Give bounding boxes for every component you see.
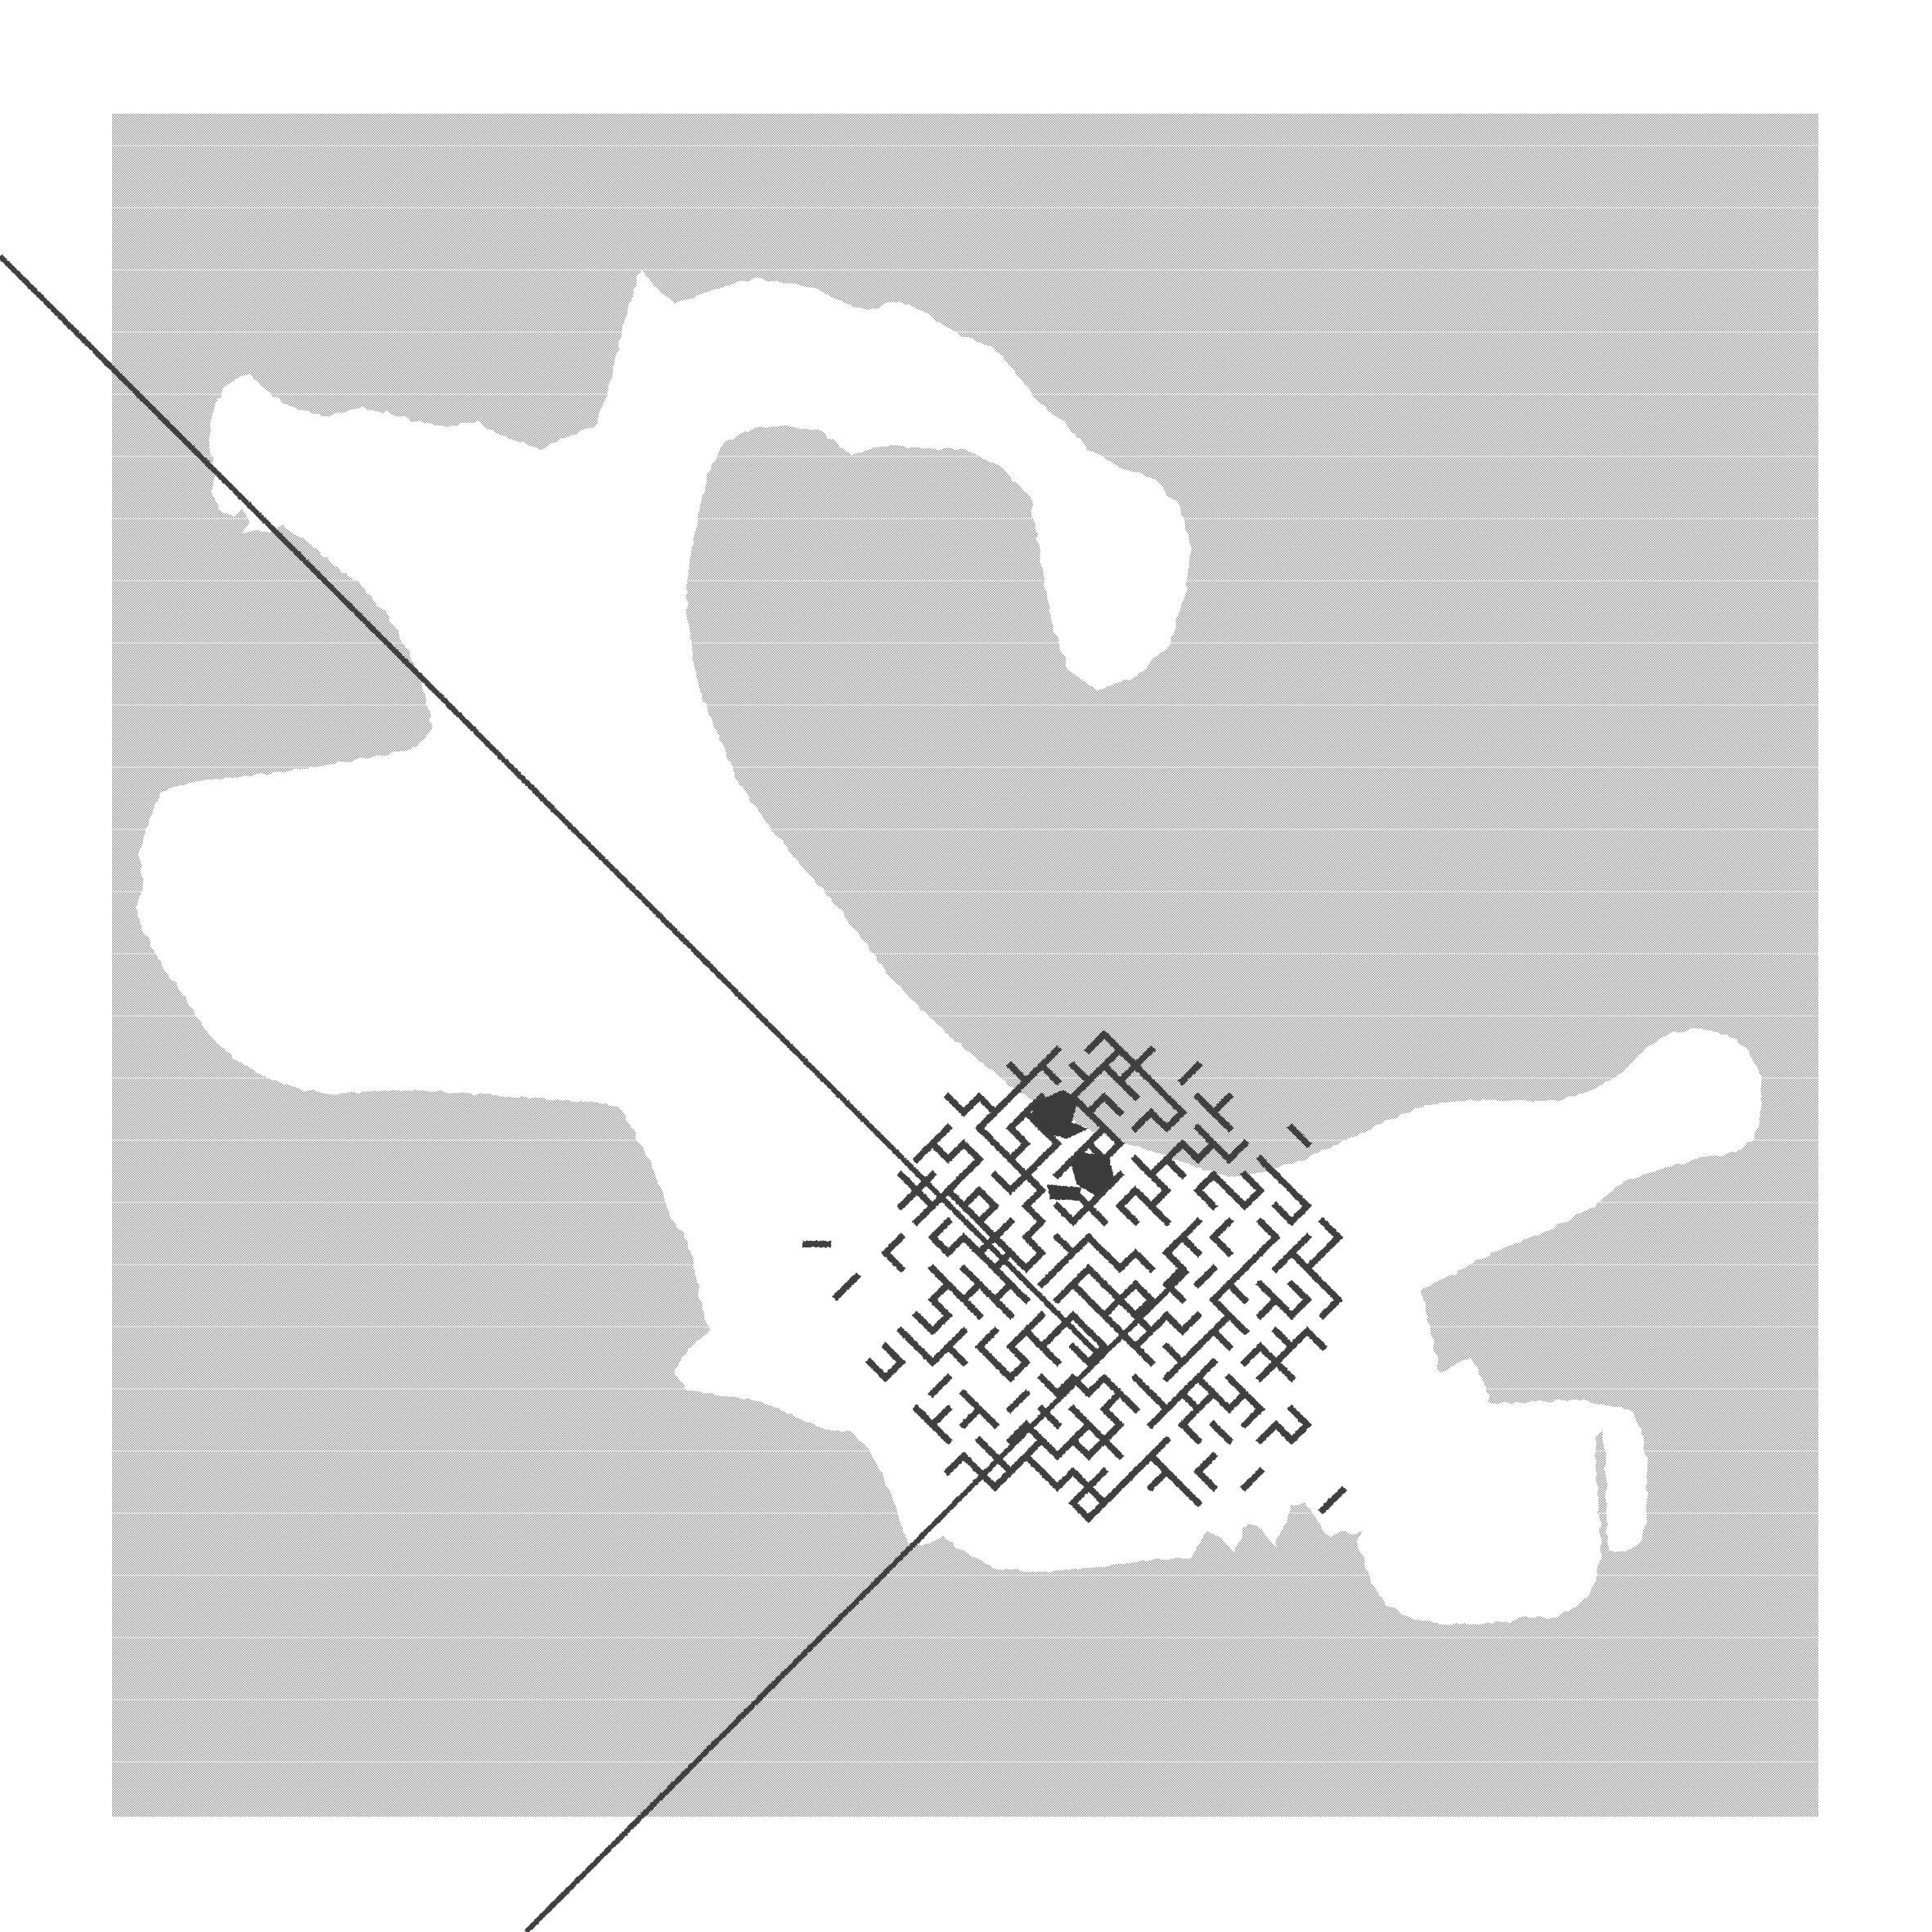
generative-map-artwork [0,0,1932,1932]
map-canvas [0,0,1932,1932]
